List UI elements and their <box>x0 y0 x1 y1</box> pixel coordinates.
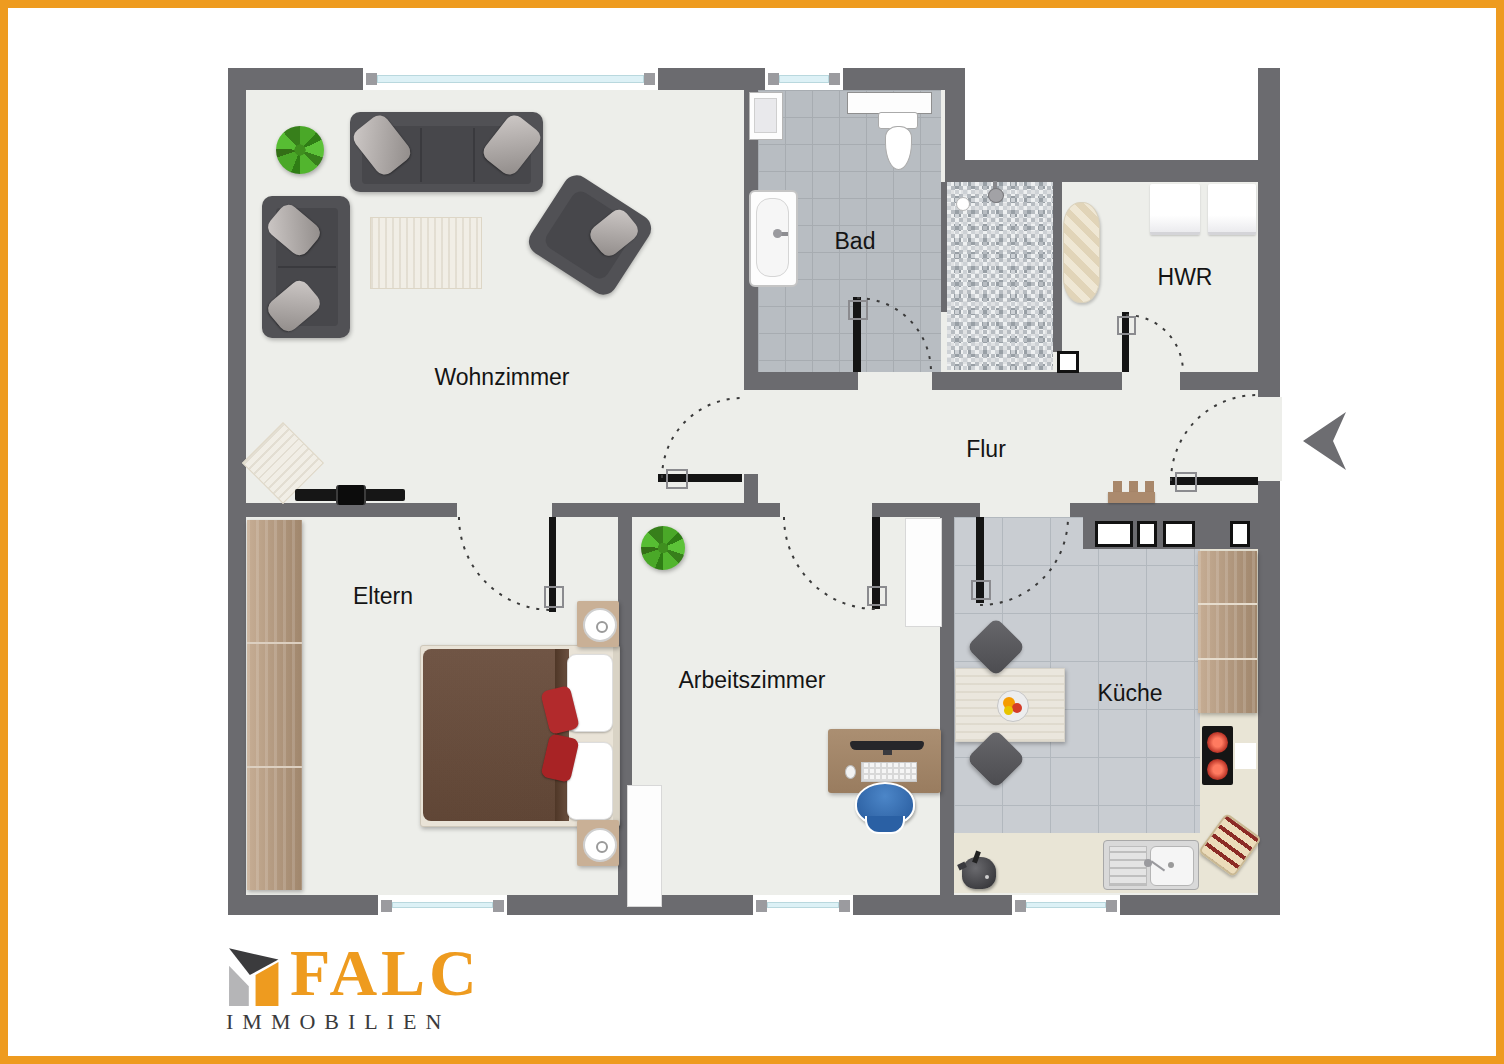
wall-bad-bottom-a <box>744 372 858 390</box>
window-arbeitszimmer <box>753 895 853 915</box>
monitor-icon <box>850 741 924 750</box>
door-handle <box>1117 316 1136 335</box>
bathtub <box>749 190 798 287</box>
wall-mid-d <box>1070 503 1258 517</box>
door-handle <box>971 580 991 600</box>
nightstand <box>577 820 619 866</box>
nightstand <box>577 601 619 647</box>
stove <box>1202 726 1233 785</box>
door-handle <box>1175 472 1197 492</box>
rug-livingroom <box>370 217 482 289</box>
kettle-icon <box>958 851 1000 891</box>
kueche-wall-cabinet-2 <box>1137 521 1157 547</box>
burner-icon <box>1207 732 1228 753</box>
keyboard-icon <box>861 762 917 782</box>
kitchen-sink <box>1103 840 1199 890</box>
fruit-bowl-icon <box>997 690 1029 722</box>
floor-plan: Wohnzimmer Bad HWR Flur Eltern Arbeitszi… <box>0 0 1504 1064</box>
wall-mid-c <box>872 503 980 517</box>
dryer <box>1208 184 1256 235</box>
wall-hwr-top <box>945 160 1280 182</box>
washing-machine <box>1150 184 1200 235</box>
wall-bad-bottom-b <box>932 372 1122 390</box>
shower-head-icon <box>986 181 1004 201</box>
coat-rack <box>1108 481 1155 503</box>
shelf-right <box>905 518 942 627</box>
tv-mount <box>336 485 366 505</box>
window-eltern <box>378 895 507 915</box>
door-handle <box>544 586 564 608</box>
plant-icon <box>641 526 685 570</box>
window-bad <box>765 68 843 90</box>
room-label-bad: Bad <box>835 228 876 255</box>
wall-wz-door-stub <box>744 474 758 517</box>
washbasin <box>749 92 783 140</box>
falc-logo: FALC IMMOBILIEN <box>228 941 528 1041</box>
shelf-left <box>627 785 662 907</box>
wall-right-lower <box>1258 480 1280 915</box>
page: { "plan": { "rooms": [ {"id": "wohnzimme… <box>0 0 1504 1064</box>
wall-left <box>228 68 246 915</box>
falc-logo-mark <box>228 944 280 1006</box>
room-label-kueche: Küche <box>1097 680 1162 707</box>
wall-shower-right <box>1053 182 1062 352</box>
door-handle <box>867 586 887 606</box>
office-chair <box>855 782 911 834</box>
room-label-flur: Flur <box>966 436 1006 463</box>
wardrobe <box>247 520 302 890</box>
window-wohnzimmer <box>363 68 658 90</box>
kitchen-tall-cabinet <box>1198 551 1257 713</box>
wall-shower-left <box>941 182 947 312</box>
wall-divider-arbeit-kueche <box>940 517 954 895</box>
kueche-wall-cabinet-3 <box>1163 521 1195 547</box>
door-handle <box>666 469 688 489</box>
burner-icon <box>1207 759 1228 780</box>
sofa-three-seater <box>350 112 543 192</box>
bathroom-shelf <box>847 92 932 114</box>
room-label-eltern: Eltern <box>353 583 413 610</box>
stove-side-counter <box>1235 743 1256 769</box>
wall-right-upper <box>1258 68 1280 398</box>
window-kueche <box>1012 895 1120 915</box>
entrance-arrow-icon <box>1303 412 1346 470</box>
logo-subtitle-text: IMMOBILIEN <box>226 1009 450 1035</box>
shower-drain-icon <box>956 197 970 211</box>
kueche-wall-cabinet-1 <box>1095 521 1133 547</box>
room-label-arbeitszimmer: Arbeitszimmer <box>679 667 826 694</box>
drainer <box>1109 846 1147 886</box>
sofa-two-seater <box>262 196 350 338</box>
toilet <box>878 112 918 170</box>
plant-icon <box>276 126 324 174</box>
shaft-symbol <box>1057 351 1079 373</box>
kueche-wall-cabinet-4 <box>1230 521 1250 547</box>
bed <box>420 645 620 827</box>
door-handle <box>848 300 868 320</box>
floor-entrance-gap <box>1258 397 1282 481</box>
logo-brand-text: FALC <box>290 935 481 1011</box>
dining-table <box>955 668 1065 742</box>
room-label-hwr: HWR <box>1158 264 1213 291</box>
mouse-icon <box>845 765 856 779</box>
wall-hwr-bottom <box>1180 372 1258 390</box>
wall-mid-a <box>228 503 457 517</box>
ironing-board <box>1063 202 1100 303</box>
room-label-wohnzimmer: Wohnzimmer <box>434 364 569 391</box>
